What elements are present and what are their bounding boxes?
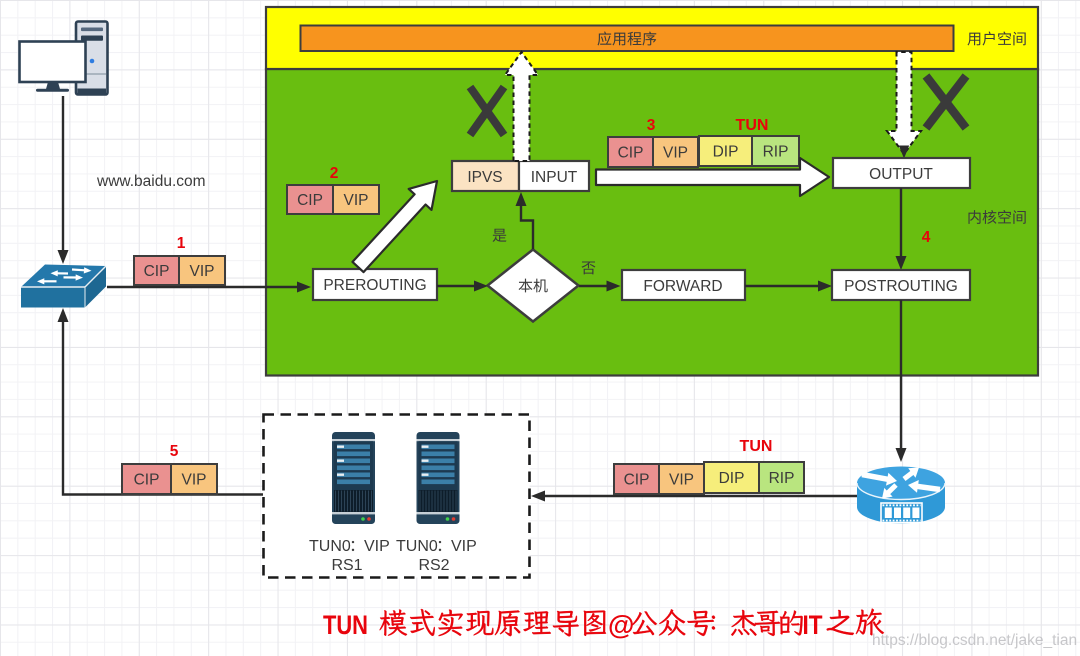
svg-text:OUTPUT: OUTPUT: [869, 166, 933, 183]
svg-text:CIP: CIP: [624, 471, 650, 488]
svg-text:CIP: CIP: [134, 471, 160, 488]
svg-text:5: 5: [170, 443, 179, 460]
svg-text:RIP: RIP: [763, 143, 789, 160]
svg-text:2: 2: [330, 165, 339, 182]
svg-text:VIP: VIP: [663, 144, 688, 161]
svg-text:VIP: VIP: [669, 471, 694, 488]
svg-text:CIP: CIP: [618, 144, 644, 161]
svg-text:PREROUTING: PREROUTING: [323, 277, 426, 294]
svg-text:CIP: CIP: [297, 192, 323, 209]
svg-text:https://blog.csdn.net/jake_tia: https://blog.csdn.net/jake_tian: [872, 632, 1077, 649]
svg-text:TUN0: TUN0: [309, 538, 351, 555]
svg-text:CIP: CIP: [144, 263, 170, 280]
svg-text:POSTROUTING: POSTROUTING: [844, 278, 958, 295]
svg-text:TUN: TUN: [323, 610, 368, 640]
svg-text:VIP: VIP: [190, 263, 215, 280]
svg-text:IPVS: IPVS: [467, 169, 502, 186]
svg-text:INPUT: INPUT: [531, 169, 578, 186]
svg-text:@: @: [608, 610, 634, 640]
svg-text:4: 4: [922, 229, 931, 246]
svg-text:VIP: VIP: [364, 538, 390, 555]
svg-text:RIP: RIP: [769, 470, 795, 487]
svg-text:TUN0: TUN0: [396, 538, 438, 555]
svg-text:VIP: VIP: [182, 471, 207, 488]
svg-text:3: 3: [647, 117, 656, 134]
svg-text:VIP: VIP: [344, 192, 369, 209]
svg-text:FORWARD: FORWARD: [643, 278, 722, 295]
svg-text:DIP: DIP: [713, 143, 739, 160]
svg-text:RS1: RS1: [331, 557, 362, 574]
svg-text:TUN: TUN: [740, 438, 773, 455]
svg-text:1: 1: [177, 235, 186, 252]
svg-text:DIP: DIP: [719, 470, 745, 487]
svg-text:IT: IT: [803, 610, 823, 640]
svg-text:RS2: RS2: [418, 557, 449, 574]
svg-text:VIP: VIP: [451, 538, 477, 555]
svg-text:TUN: TUN: [736, 117, 769, 134]
svg-text:www.baidu.com: www.baidu.com: [96, 173, 206, 190]
